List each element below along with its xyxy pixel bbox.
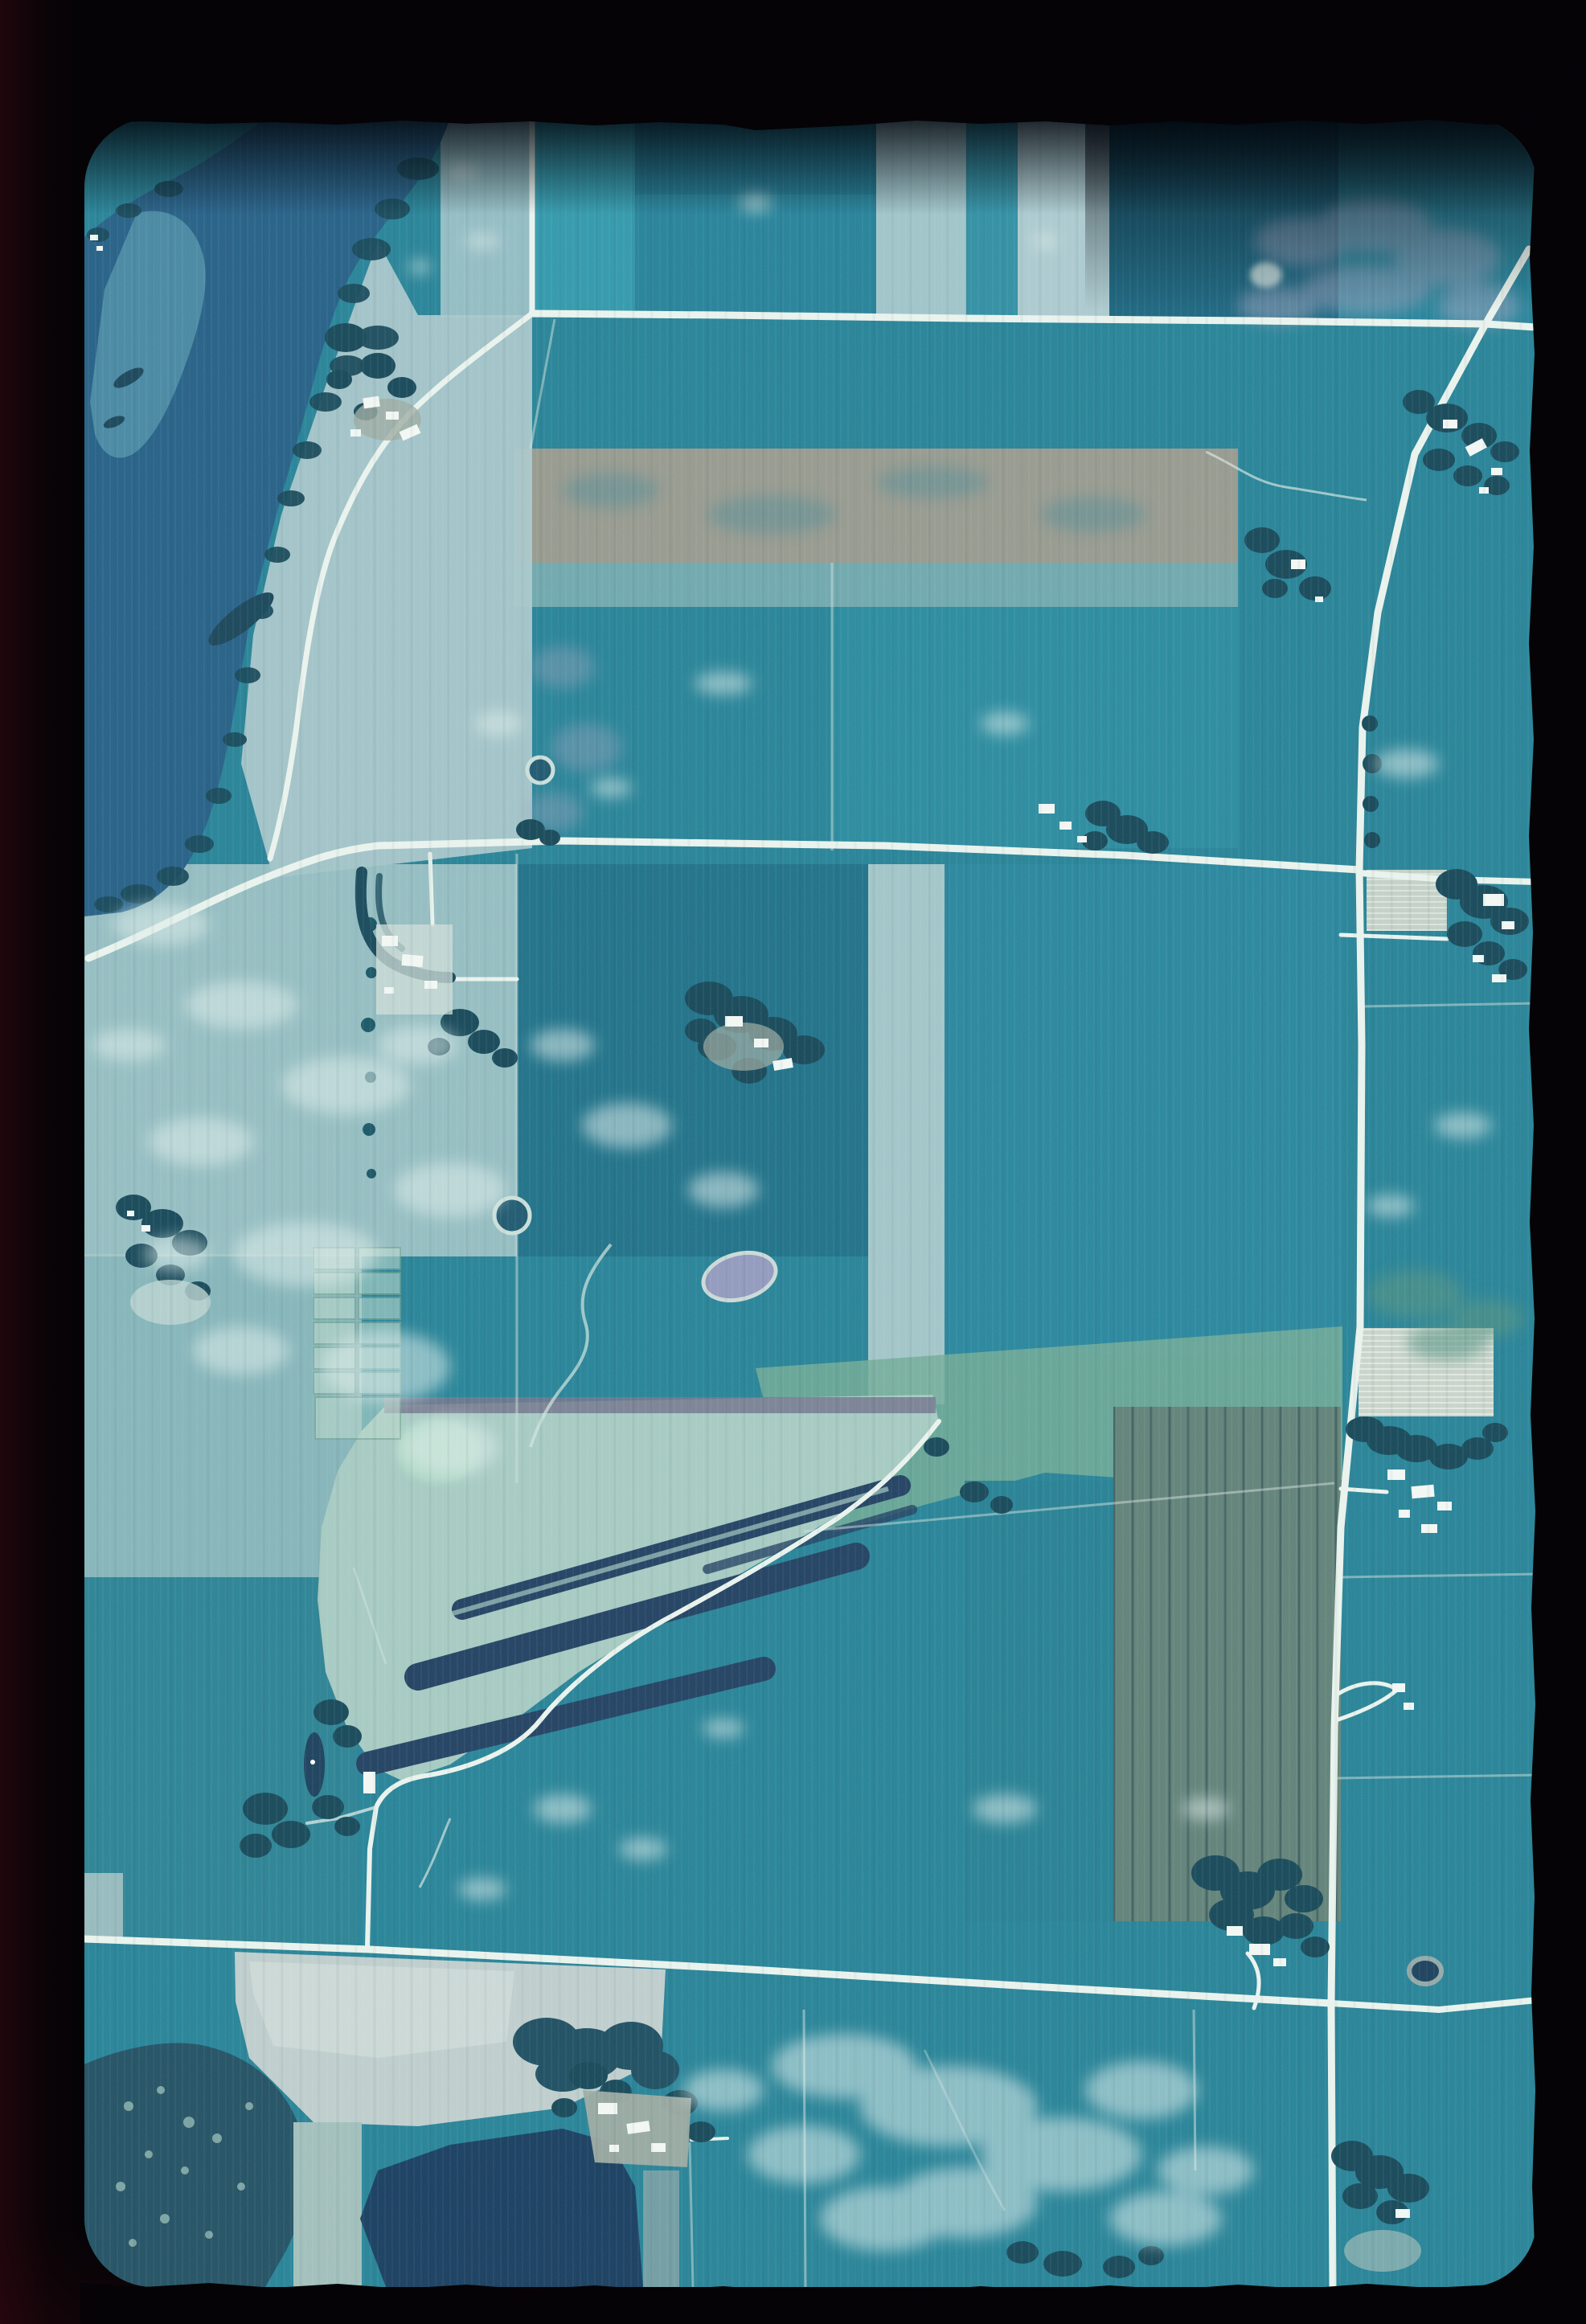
- slide-scan: { "meta": { "kind": "scanned 35mm color …: [0, 0, 1586, 2324]
- photo-aperture: [84, 118, 1537, 2287]
- film-edge-shadow-topright: [1085, 118, 1537, 311]
- aerial-photo-slide: [0, 0, 1586, 2324]
- film-grain: [84, 118, 1537, 2287]
